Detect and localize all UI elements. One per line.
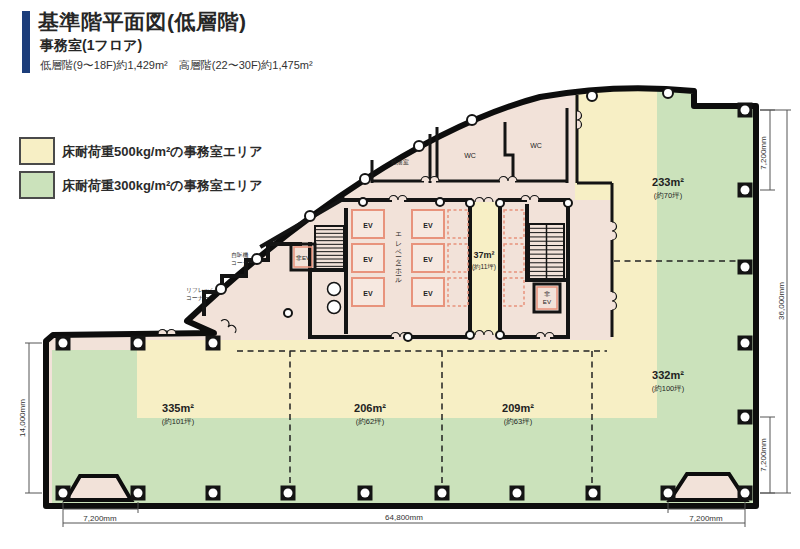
wall-column-marker <box>252 254 262 264</box>
legend-label-300kg: 床耐荷重300kg/m²の事務室エリア <box>61 178 263 193</box>
ev-label: EV <box>423 290 433 297</box>
legend-swatch-300kg-icon <box>20 172 54 198</box>
dim-left: 14,000mm <box>18 399 27 437</box>
area-37-tsubo: (約11坪) <box>472 263 496 271</box>
column-core-icon <box>284 489 293 498</box>
area-206-value: 206m² <box>354 402 386 414</box>
dim-right-total: 36,000mm <box>777 282 786 320</box>
legend-swatch-500kg-icon <box>20 138 54 164</box>
dim-right-top: 7,200mm <box>759 136 768 170</box>
column-core-icon <box>589 489 598 498</box>
vending-corner-label-2: コーナー <box>231 260 255 266</box>
wall-column-marker <box>436 198 444 206</box>
wall-column-marker <box>305 211 315 221</box>
floor-plan-page: 基準階平面図(低層階) 事務室(1フロア) 低層階(9〜18F)約1,429m²… <box>0 0 800 549</box>
wall-column-marker <box>564 199 572 207</box>
area-233-value: 233m² <box>652 176 684 188</box>
area-233-tsubo: (約70坪) <box>654 191 683 200</box>
floor-plan-drawing: 床耐荷重500kg/m²の事務室エリア 床耐荷重300kg/m²の事務室エリア <box>0 0 800 549</box>
area-332-value: 332m² <box>652 369 684 381</box>
wall-column-marker <box>284 309 292 317</box>
column-core-icon <box>134 339 143 348</box>
wall-column-marker <box>360 174 370 184</box>
column-core-icon <box>59 489 68 498</box>
column-core-icon <box>513 489 522 498</box>
wc2-label: WC <box>530 142 542 149</box>
legend-label-500kg: 床耐荷重500kg/m²の事務室エリア <box>61 144 263 159</box>
wall-column-marker <box>328 283 341 296</box>
wall-column-marker <box>466 199 474 207</box>
column-core-icon <box>664 489 673 498</box>
wall-column-marker <box>587 91 597 101</box>
ev-label: EV <box>363 256 373 263</box>
ev-label: EV <box>423 222 433 229</box>
area-335-value: 335m² <box>162 402 194 414</box>
area-335-tsubo: (約101坪) <box>162 417 195 426</box>
column-core-icon <box>209 339 218 348</box>
emergency-ev-left-label: 非EV <box>296 254 311 261</box>
area-37-value: 37m² <box>473 250 494 260</box>
wall-column-marker <box>359 198 367 206</box>
column-core-icon <box>209 489 218 498</box>
column-core-icon <box>361 489 370 498</box>
wall-column-marker <box>496 199 504 207</box>
wall-column-marker <box>467 115 477 125</box>
zone-500kg-right <box>612 200 657 348</box>
area-332-tsubo: (約100坪) <box>652 384 685 393</box>
column-core-icon <box>741 339 750 348</box>
column-core-icon <box>741 413 750 422</box>
wall-column-marker <box>496 331 504 339</box>
column-core-icon <box>134 489 143 498</box>
column-core-icon <box>741 106 750 115</box>
area-209-tsubo: (約63坪) <box>504 417 533 426</box>
column-core-icon <box>741 489 750 498</box>
refresh-corner-label-2: コーナー <box>186 295 210 301</box>
column-core-icon <box>438 489 447 498</box>
legend: 床耐荷重500kg/m²の事務室エリア 床耐荷重300kg/m²の事務室エリア <box>20 138 263 198</box>
kitchen-label: 給湯室 <box>390 158 409 166</box>
emergency-ev-right-label-1: 非 <box>544 290 550 297</box>
column-core-icon <box>741 263 750 272</box>
dim-right-bottom: 7,200mm <box>759 438 768 472</box>
dim-bottom-total: 64,800mm <box>385 513 423 522</box>
zone-300kg-right <box>657 85 756 505</box>
column-core-icon <box>741 186 750 195</box>
ev-label: EV <box>423 256 433 263</box>
wall-column-marker <box>466 331 474 339</box>
wall-column-marker <box>663 88 673 98</box>
wall-column-marker <box>216 284 226 294</box>
dim-bottom-left: 7,200mm <box>83 514 117 523</box>
wall-column-marker <box>414 141 424 151</box>
wc1-label: WC <box>464 152 476 159</box>
vending-corner-label-1: 自販機 <box>231 251 249 259</box>
dim-bottom-right: 7,200mm <box>689 514 723 523</box>
wall-column-marker <box>328 301 341 314</box>
door-opening-icon <box>158 330 176 335</box>
column-core-icon <box>59 339 68 348</box>
emergency-ev-right-label-2: EV <box>543 298 552 305</box>
wall-column-marker <box>404 333 412 341</box>
elevator-hall-label: エレベーターホール <box>395 228 403 283</box>
ev-label: EV <box>363 222 373 229</box>
area-206-tsubo: (約62坪) <box>356 417 385 426</box>
area-209-value: 209m² <box>502 402 534 414</box>
ev-label: EV <box>363 290 373 297</box>
stair-pod-left <box>66 476 131 500</box>
zone-300kg-left <box>52 350 137 418</box>
